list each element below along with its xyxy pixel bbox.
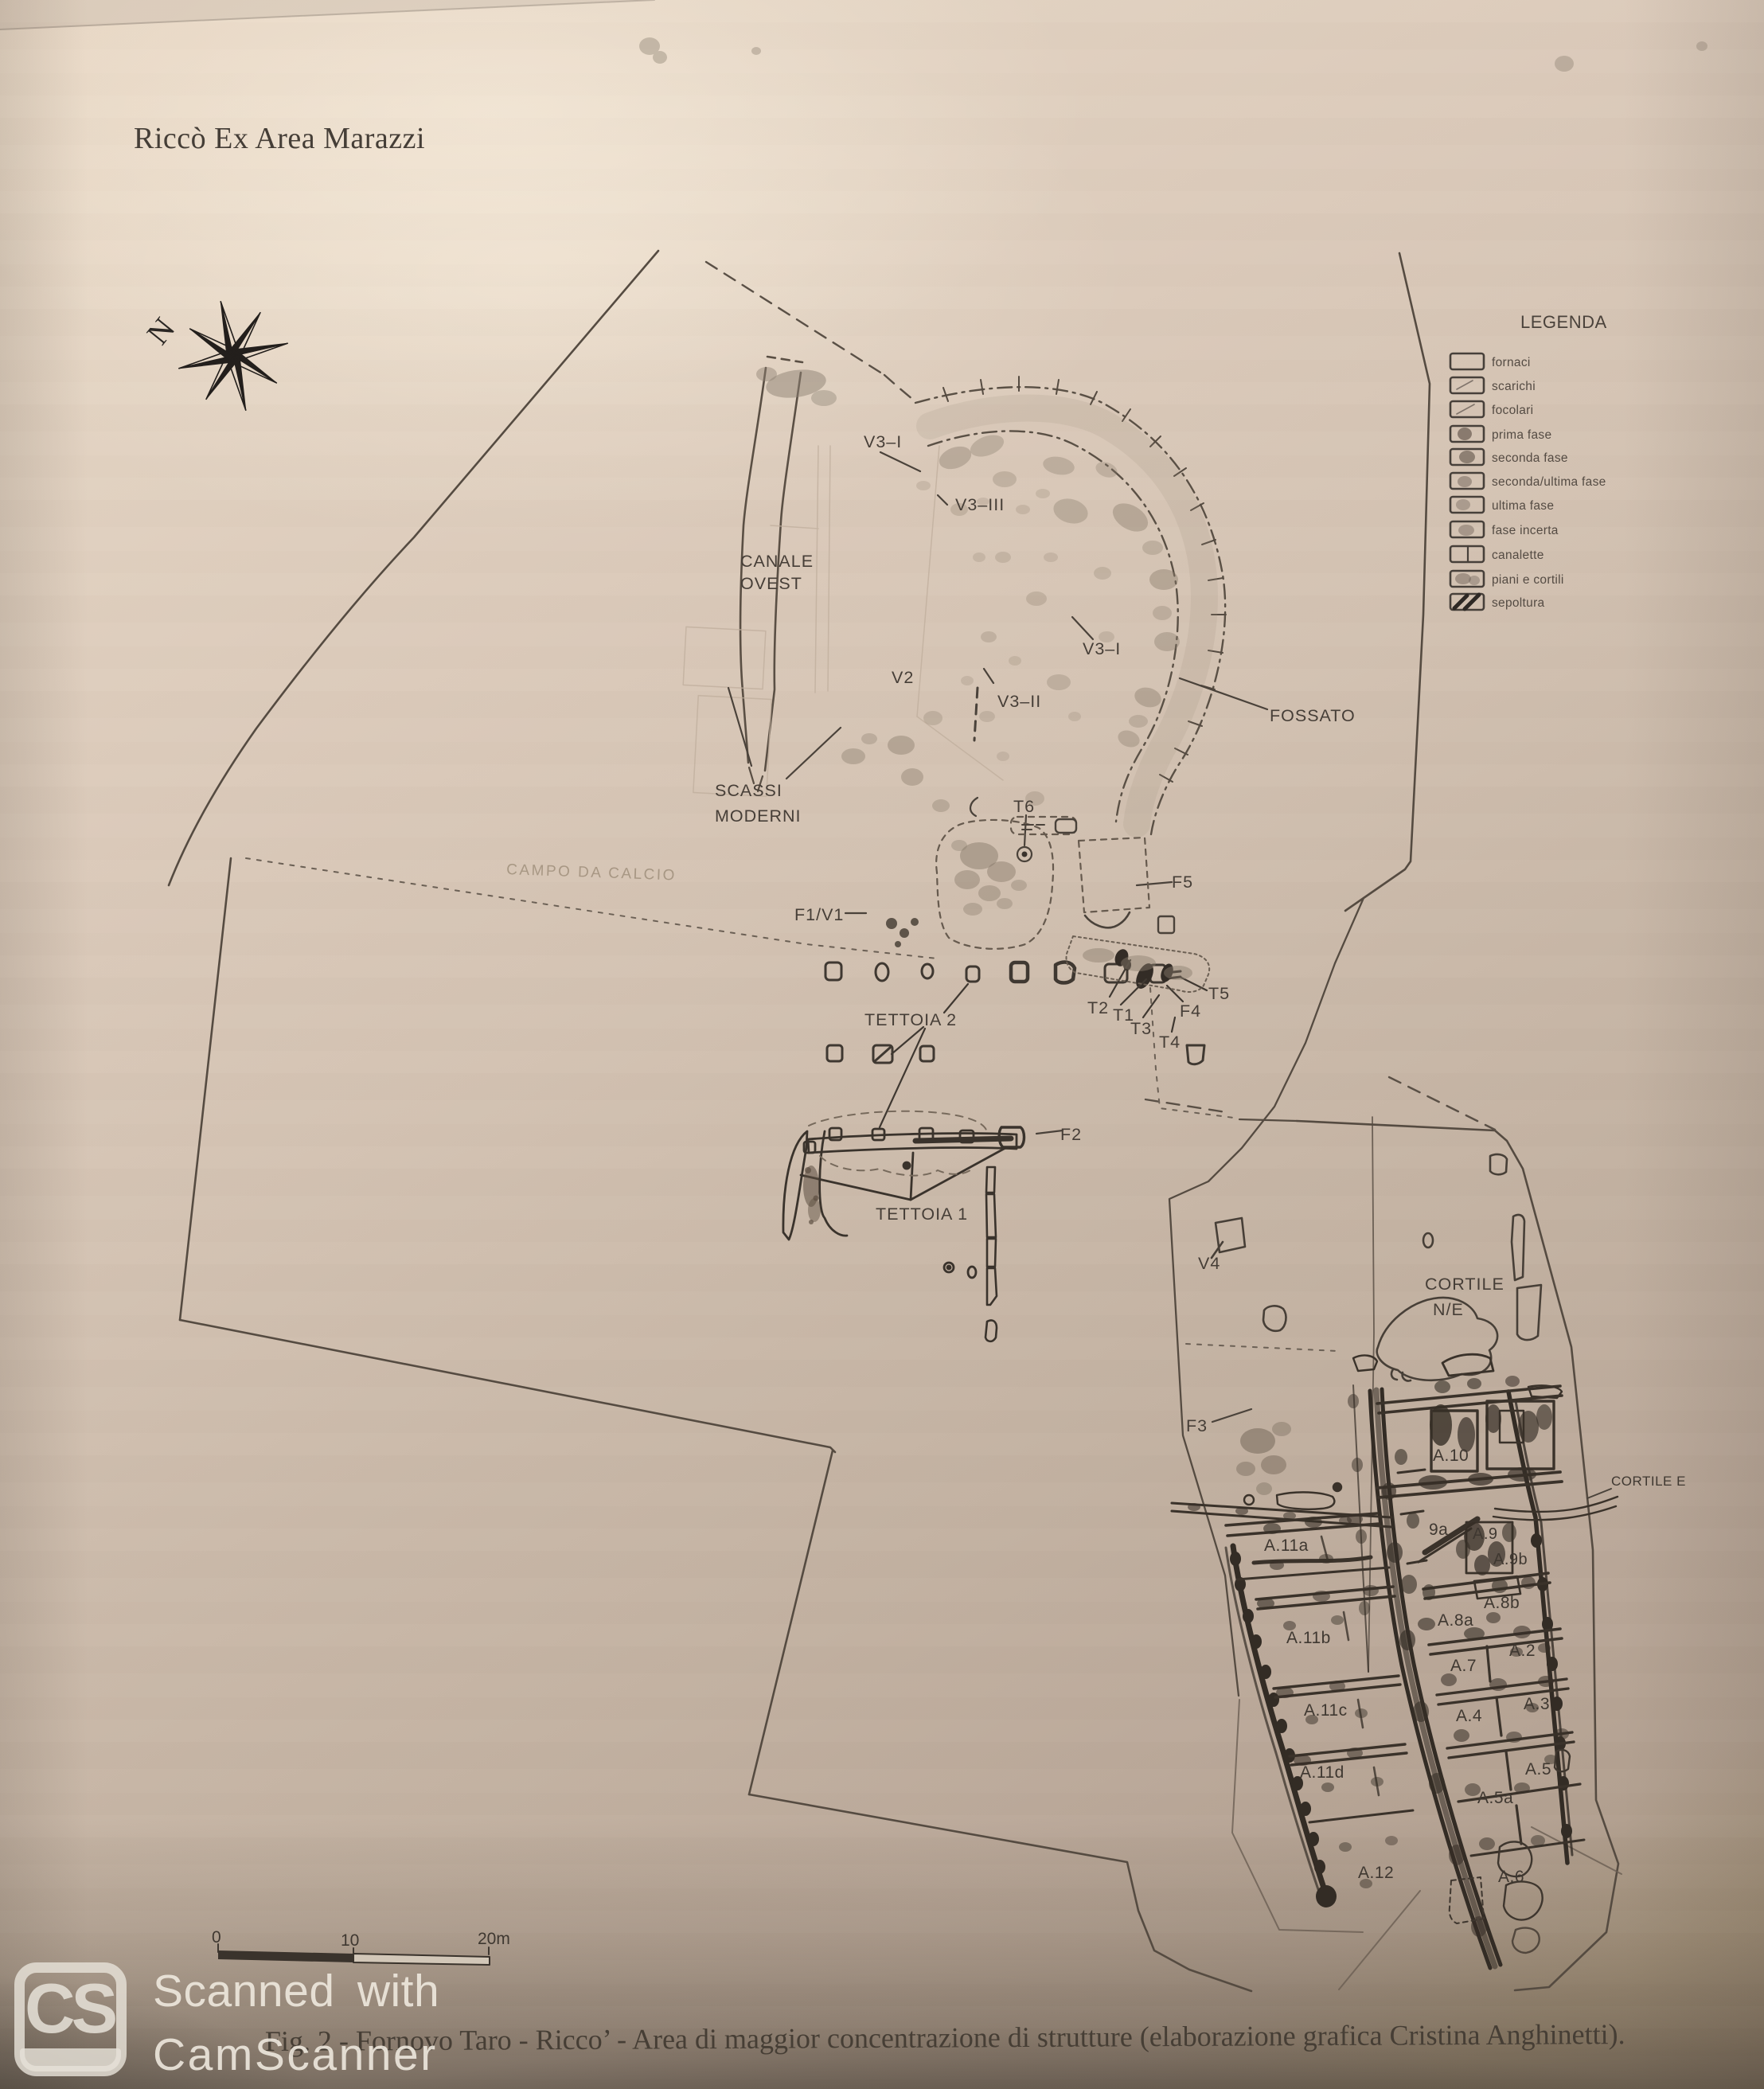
svg-text:A.11a: A.11a: [1264, 1536, 1309, 1555]
svg-text:scarichi: scarichi: [1492, 380, 1536, 393]
svg-text:A.11b: A.11b: [1286, 1629, 1331, 1647]
svg-text:T6: T6: [1013, 797, 1035, 816]
svg-text:V4: V4: [1198, 1254, 1220, 1273]
svg-text:prima fase: prima fase: [1492, 428, 1551, 442]
svg-text:20m: 20m: [478, 1930, 510, 1948]
svg-text:V3–II: V3–II: [997, 692, 1041, 711]
svg-text:CORTILE E: CORTILE E: [1611, 1474, 1686, 1489]
svg-text:A.9b: A.9b: [1493, 1551, 1528, 1568]
svg-text:9a: 9a: [1429, 1521, 1448, 1539]
svg-text:V3–III: V3–III: [955, 495, 1005, 514]
svg-text:SCASSI: SCASSI: [715, 781, 782, 800]
svg-text:FOSSATO: FOSSATO: [1270, 706, 1356, 725]
svg-text:F4: F4: [1180, 1002, 1201, 1021]
svg-text:10: 10: [341, 1931, 359, 1950]
svg-text:A.6: A.6: [1498, 1868, 1524, 1886]
svg-text:Fig. 2 - Fornovo Taro - Ricco’: Fig. 2 - Fornovo Taro - Ricco’ - Area di…: [265, 2018, 1625, 2057]
svg-text:A.5: A.5: [1525, 1760, 1551, 1779]
svg-text:T4: T4: [1159, 1033, 1181, 1052]
svg-text:N/E: N/E: [1433, 1300, 1464, 1319]
svg-text:piani e cortili: piani e cortili: [1492, 573, 1564, 587]
svg-text:V2: V2: [892, 668, 914, 687]
svg-text:canalette: canalette: [1492, 549, 1544, 562]
svg-text:0: 0: [212, 1928, 221, 1946]
svg-text:sepoltura: sepoltura: [1492, 596, 1545, 610]
svg-text:A.8b: A.8b: [1484, 1594, 1520, 1612]
svg-text:seconda/ultima fase: seconda/ultima fase: [1492, 475, 1606, 489]
svg-text:CANALE: CANALE: [740, 552, 814, 571]
svg-text:A.2: A.2: [1509, 1642, 1536, 1660]
svg-text:T5: T5: [1208, 984, 1230, 1003]
svg-text:seconda fase: seconda fase: [1492, 451, 1568, 465]
svg-text:A.7: A.7: [1450, 1657, 1477, 1675]
svg-text:F1/V1: F1/V1: [794, 905, 844, 924]
svg-text:CAMPO DA CALCIO: CAMPO DA CALCIO: [506, 861, 677, 884]
svg-text:A.11d: A.11d: [1300, 1763, 1344, 1782]
svg-text:OVEST: OVEST: [740, 574, 802, 593]
svg-text:MODERNI: MODERNI: [715, 806, 802, 826]
svg-text:ultima fase: ultima fase: [1492, 499, 1554, 513]
svg-text:Riccò Ex Area Marazzi: Riccò Ex Area Marazzi: [134, 122, 425, 155]
svg-text:CORTILE: CORTILE: [1425, 1275, 1504, 1294]
svg-text:TETTOIA 1: TETTOIA 1: [876, 1205, 968, 1224]
svg-text:focolari: focolari: [1492, 404, 1533, 417]
svg-text:A.3: A.3: [1524, 1695, 1550, 1713]
svg-text:F3: F3: [1186, 1416, 1208, 1435]
svg-text:TETTOIA 2: TETTOIA 2: [864, 1010, 957, 1029]
svg-text:A.11c: A.11c: [1304, 1701, 1348, 1720]
svg-text:T2: T2: [1087, 998, 1109, 1017]
svg-text:A.8a: A.8a: [1438, 1611, 1473, 1630]
svg-text:A.12: A.12: [1358, 1864, 1394, 1882]
svg-text:T3: T3: [1130, 1019, 1152, 1038]
svg-text:F2: F2: [1060, 1125, 1082, 1144]
svg-text:A.4: A.4: [1456, 1707, 1482, 1725]
svg-text:V3–I: V3–I: [864, 432, 902, 451]
svg-text:F5: F5: [1172, 873, 1193, 892]
svg-text:A.5a: A.5a: [1477, 1789, 1513, 1807]
svg-text:V3–I: V3–I: [1083, 639, 1121, 658]
svg-text:LEGENDA: LEGENDA: [1520, 312, 1607, 332]
svg-text:fornaci: fornaci: [1492, 356, 1531, 369]
svg-text:A.10: A.10: [1433, 1447, 1469, 1465]
svg-text:N: N: [139, 310, 181, 351]
svg-text:A.9: A.9: [1473, 1525, 1498, 1543]
svg-text:fase incerta: fase incerta: [1492, 524, 1559, 537]
